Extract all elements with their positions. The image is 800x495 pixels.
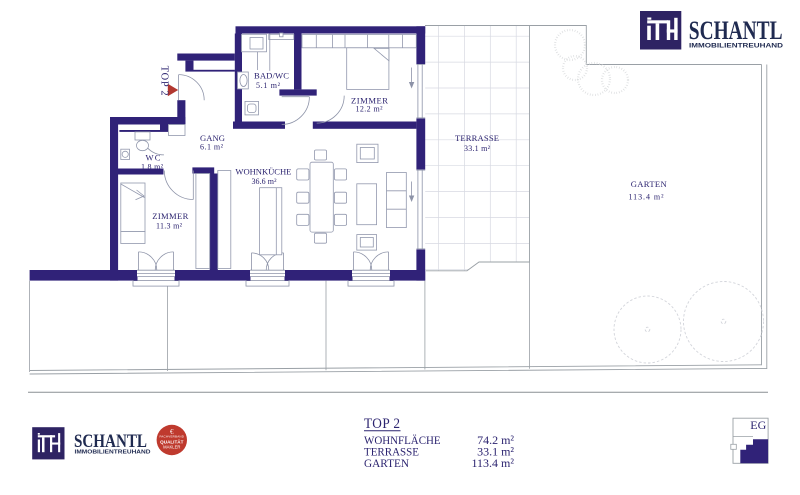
svg-text:36.6 m²: 36.6 m²	[252, 177, 278, 186]
svg-text:EG: EG	[750, 418, 766, 432]
svg-text:SCHANTL: SCHANTL	[689, 15, 783, 45]
svg-text:113.4 m²: 113.4 m²	[472, 456, 515, 470]
svg-text:12.2 m²: 12.2 m²	[356, 104, 384, 113]
svg-text:GARTEN: GARTEN	[364, 456, 409, 470]
svg-text:TERRASSE: TERRASSE	[455, 133, 499, 143]
svg-text:TOP 2: TOP 2	[159, 66, 170, 97]
svg-text:BAD/WC: BAD/WC	[254, 71, 289, 81]
svg-text:113.4 m²: 113.4 m²	[629, 193, 665, 202]
svg-text:WC: WC	[146, 153, 161, 163]
svg-text:1.8 m²: 1.8 m²	[141, 162, 164, 171]
svg-text:FACHVERBAND: FACHVERBAND	[159, 435, 184, 439]
svg-text:ZIMMER: ZIMMER	[152, 211, 188, 221]
svg-text:6.1 m²: 6.1 m²	[200, 142, 224, 151]
svg-text:11.3 m²: 11.3 m²	[156, 222, 183, 231]
svg-text:5.1 m²: 5.1 m²	[256, 81, 281, 90]
svg-text:MAKLER: MAKLER	[163, 445, 180, 450]
svg-text:IMMOBILIENTREUHAND: IMMOBILIENTREUHAND	[75, 449, 151, 455]
svg-text:33.1 m²: 33.1 m²	[464, 144, 491, 153]
svg-text:GARTEN: GARTEN	[631, 179, 668, 189]
svg-text:IMMOBILIENTREUHAND: IMMOBILIENTREUHAND	[689, 42, 783, 49]
svg-text:GANG: GANG	[200, 133, 225, 143]
svg-text:WOHNKÜCHE: WOHNKÜCHE	[235, 166, 291, 176]
svg-text:TOP 2: TOP 2	[364, 416, 401, 432]
